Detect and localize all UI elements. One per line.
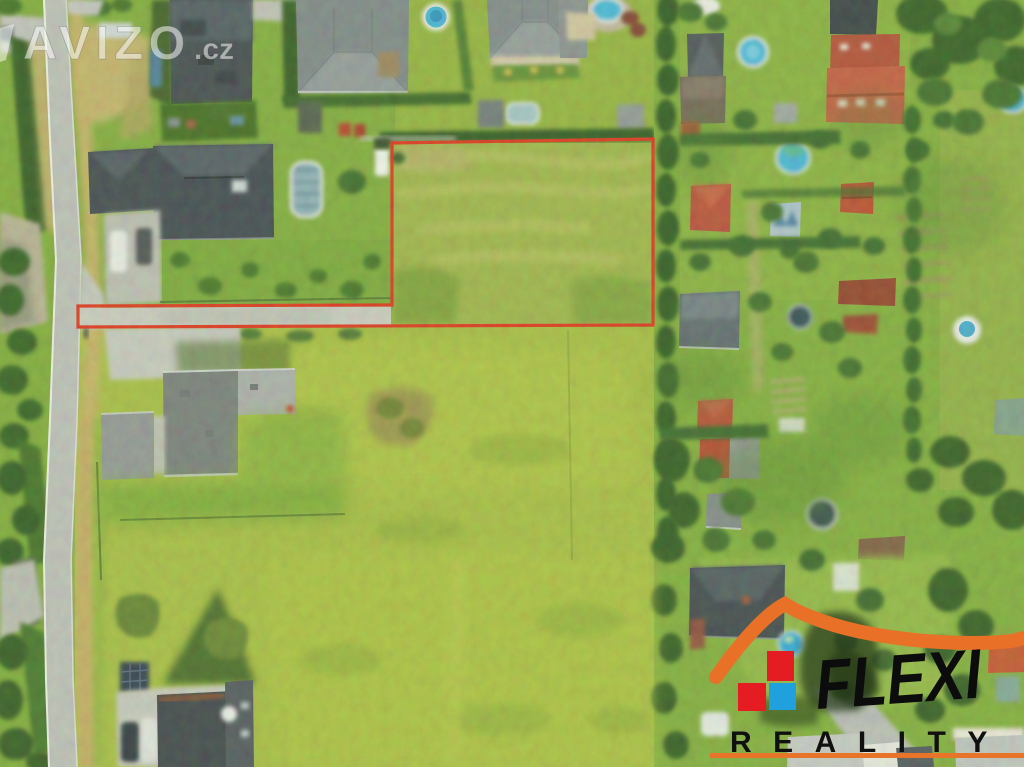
svg-text:.cz: .cz [194,33,234,66]
svg-text:AVIZO: AVIZO [23,16,191,69]
svg-text:FLEXI: FLEXI [813,634,985,723]
